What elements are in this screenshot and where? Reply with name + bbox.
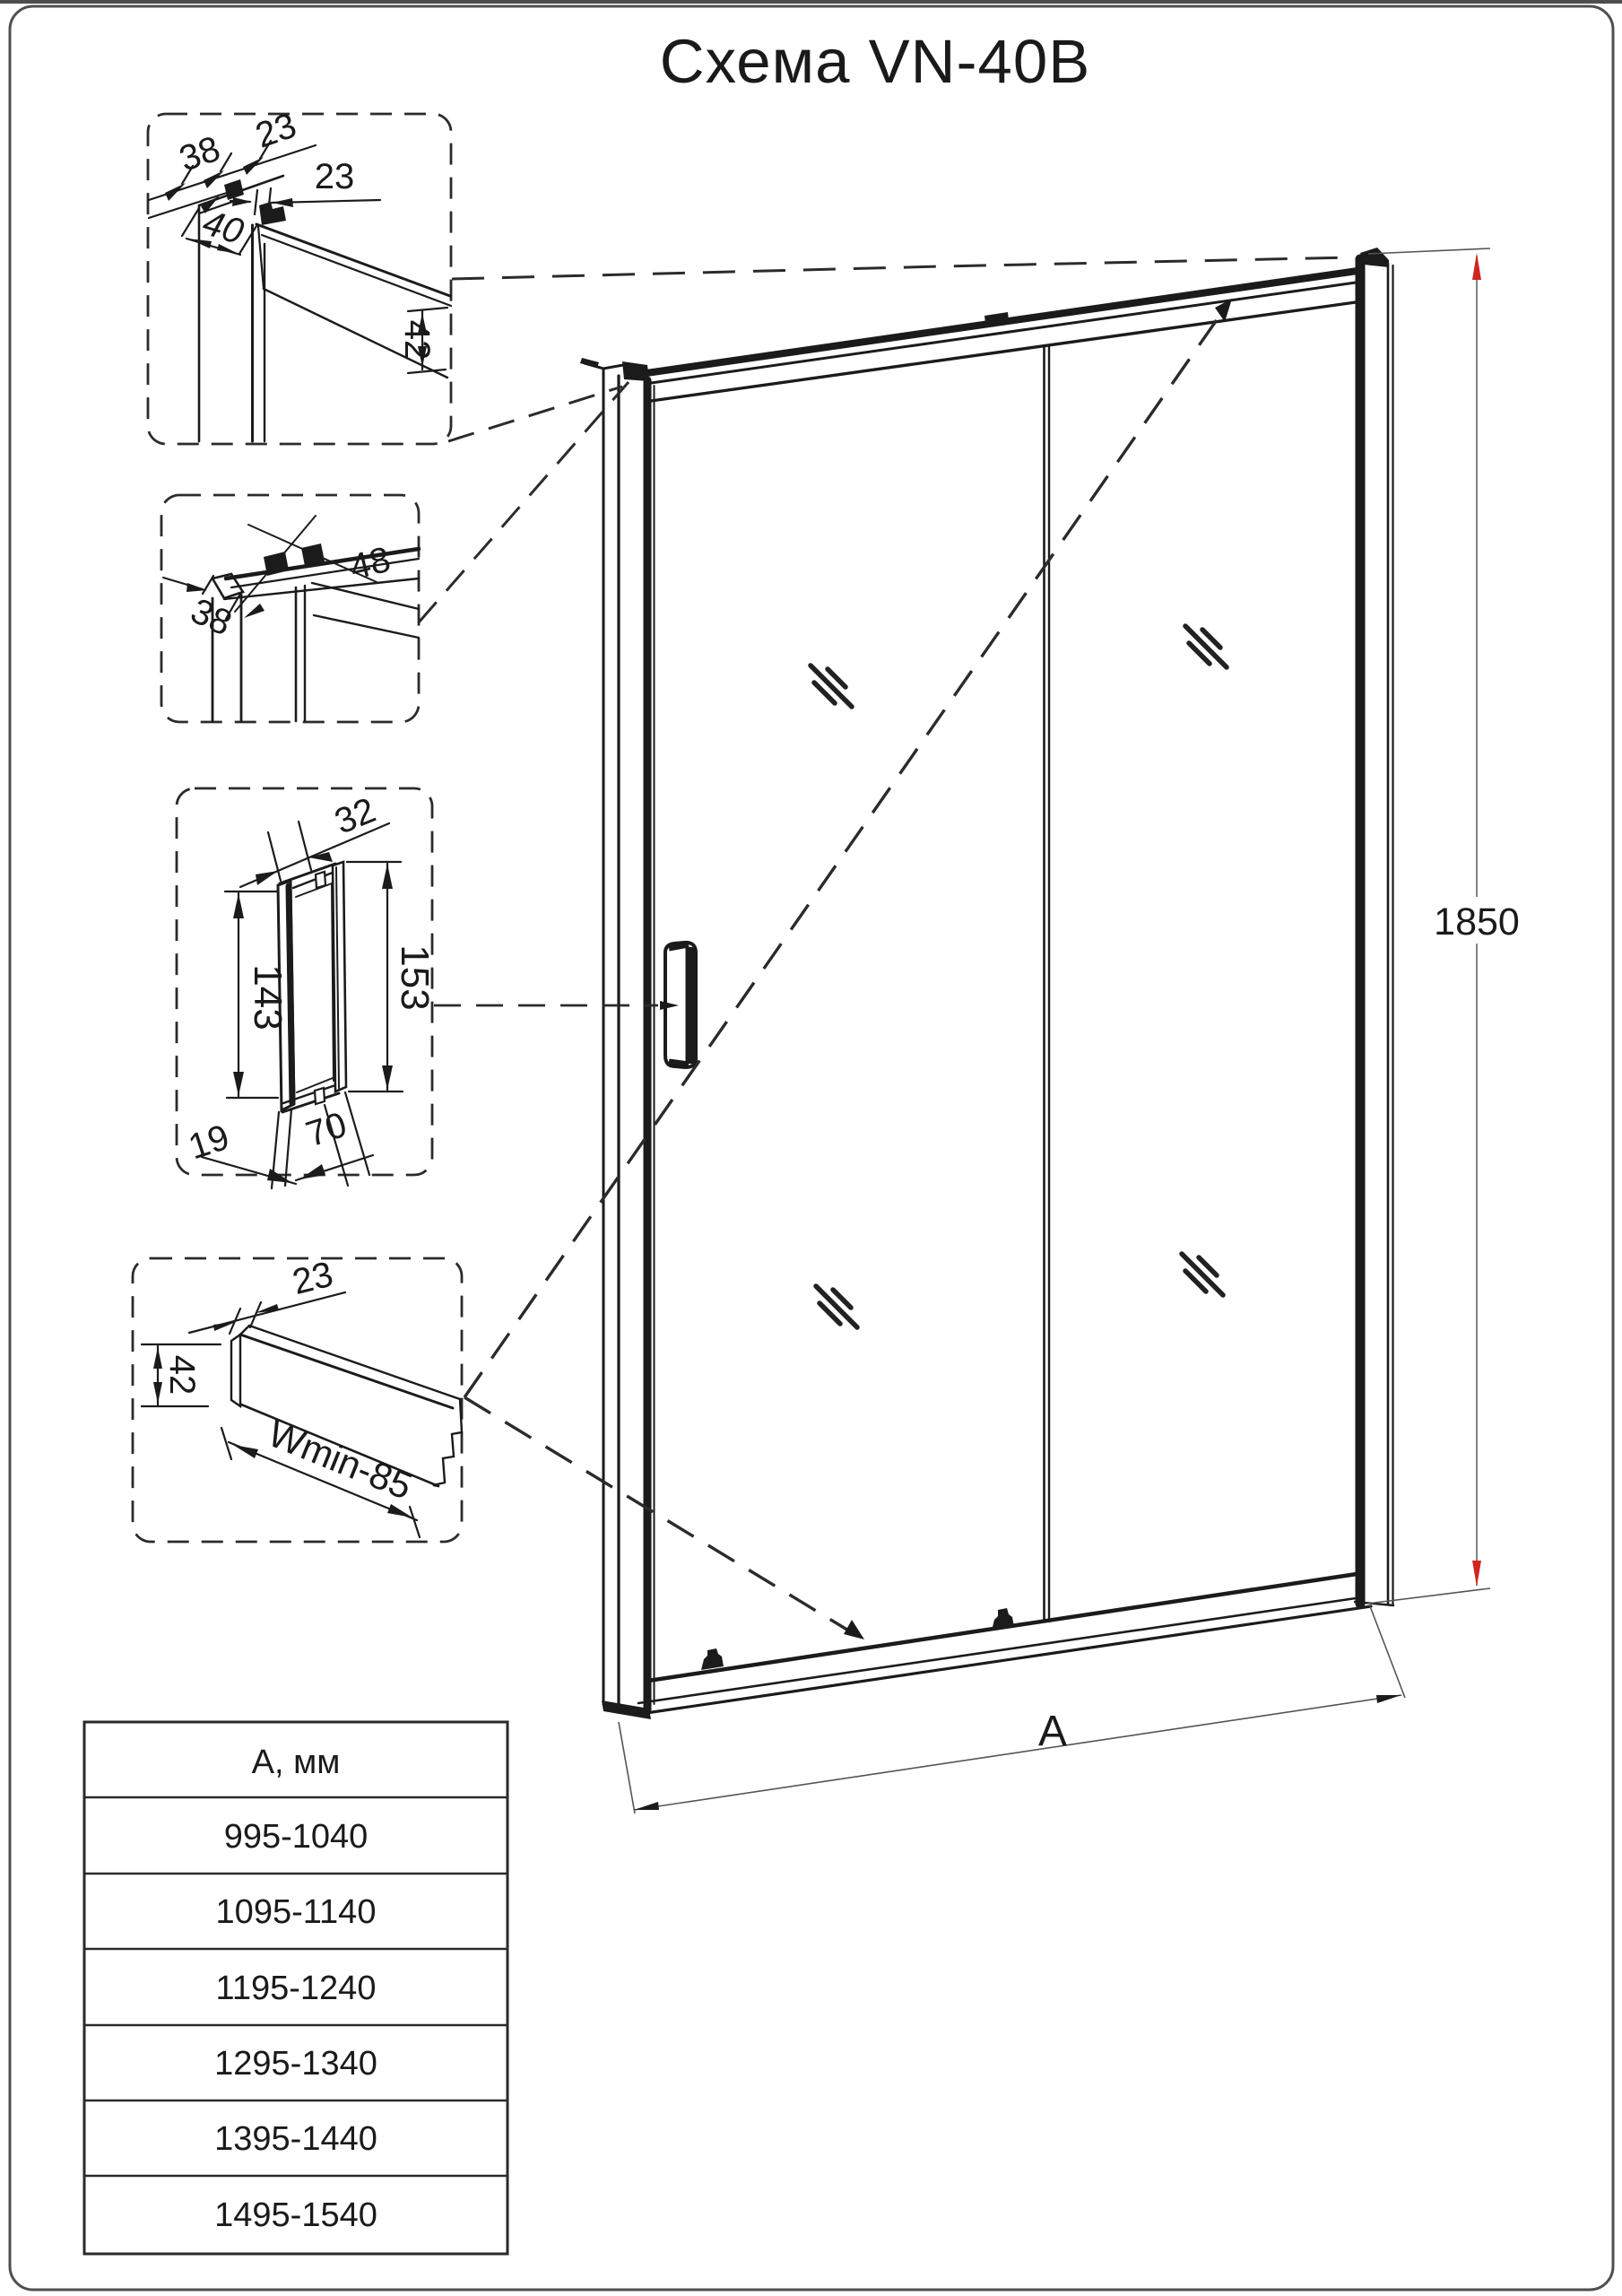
- svg-text:1495-1540: 1495-1540: [214, 2196, 377, 2234]
- svg-text:42: 42: [162, 1355, 202, 1396]
- svg-text:Схема VN-40B: Схема VN-40B: [660, 27, 1091, 96]
- svg-text:995-1040: 995-1040: [224, 1818, 369, 1856]
- svg-text:1095-1140: 1095-1140: [216, 1893, 377, 1931]
- svg-text:1295-1340: 1295-1340: [214, 2045, 377, 2083]
- svg-text:1195-1240: 1195-1240: [216, 1970, 377, 2007]
- svg-text:153: 153: [393, 944, 437, 1010]
- svg-text:143: 143: [246, 964, 290, 1030]
- svg-text:1850: 1850: [1434, 900, 1520, 944]
- svg-text:42: 42: [397, 320, 437, 361]
- svg-text:23: 23: [315, 157, 355, 196]
- svg-text:1395-1440: 1395-1440: [214, 2120, 377, 2158]
- svg-text:А, мм: А, мм: [252, 1744, 341, 1781]
- svg-text:А: А: [1038, 1708, 1067, 1755]
